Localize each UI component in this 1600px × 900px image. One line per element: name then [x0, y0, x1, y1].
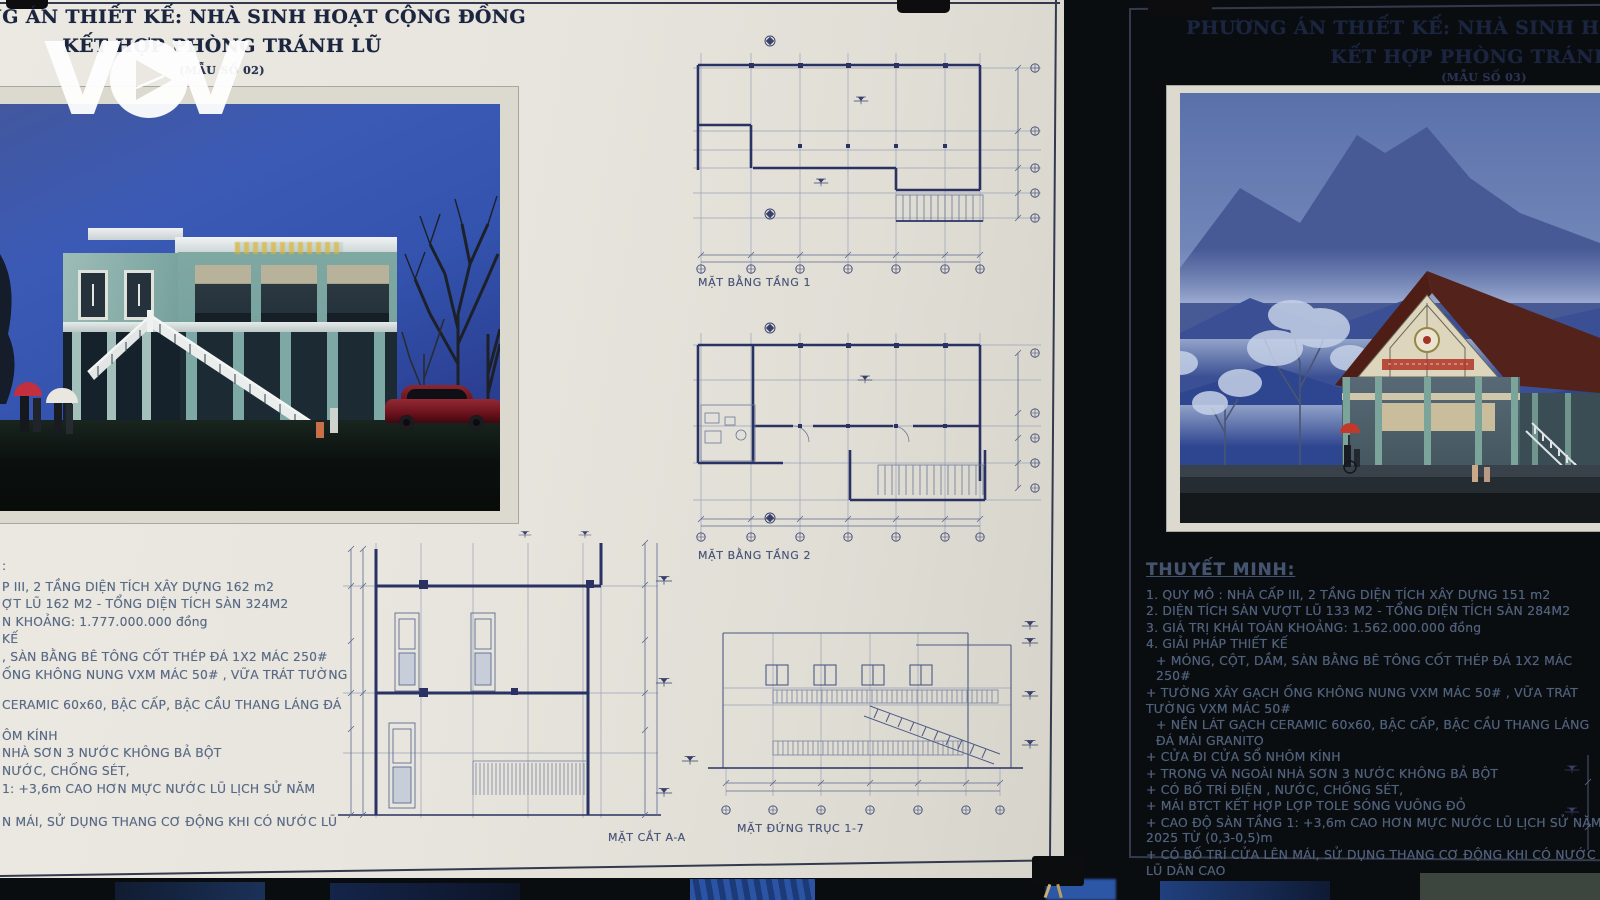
- right-title-text1: PHƯƠNG ÁN THIẾT KẾ: NHÀ SINH HOẠT CỘNG Đ…: [1186, 17, 1600, 39]
- section-drawing: [323, 523, 673, 838]
- mountain-layers: [1180, 93, 1600, 523]
- floor-plan-2-drawing: [663, 313, 1058, 558]
- binder-clip-bottom-icon: [1032, 856, 1084, 886]
- background-fragment: [690, 879, 815, 900]
- note-line: 1. QUY MÔ : NHÀ CẤP III, 2 TẦNG DIỆN TÍC…: [1146, 587, 1600, 603]
- background-fragment: [115, 882, 265, 900]
- vov-logo: V V: [44, 30, 259, 130]
- right-architectural-rendering: [1180, 93, 1600, 523]
- red-car: [385, 383, 500, 433]
- section-label: MẶT CẮT A-A: [608, 831, 686, 844]
- note-line: + CÓ BỐ TRÍ ĐIỆN , NƯỚC, CHỐNG SÉT,: [1146, 782, 1600, 798]
- car-wheel: [469, 415, 484, 430]
- note-line: + NỀN LÁT GẠCH CERAMIC 60x60, BẬC CẤP, B…: [1146, 717, 1600, 749]
- rendering-ground: [0, 420, 500, 511]
- background-fragment: [1420, 873, 1600, 900]
- notes-heading: THUYẾT MINH:: [1146, 560, 1600, 580]
- person-figure: [66, 404, 73, 434]
- person-figure: [20, 396, 29, 432]
- note-line: 3. GIÁ TRỊ KHÁI TOÁN KHOẢNG: 1.562.000.0…: [1146, 620, 1600, 636]
- child-figure: [316, 422, 324, 438]
- binder-clip-icon: [1148, 0, 1212, 17]
- note-line: + TRONG VÀ NGOÀI NHÀ SƠN 3 NƯỚC KHÔNG BẢ…: [1146, 766, 1600, 782]
- note-line: + TƯỜNG XÂY GẠCH ỐNG KHÔNG NUNG VXM MÁC …: [1146, 685, 1600, 717]
- drawing-fragment: [1558, 750, 1600, 860]
- note-line: + CAO ĐỘ SÀN TẦNG 1: +3,6m CAO HƠN MỰC N…: [1146, 815, 1600, 847]
- person-figure: [54, 403, 62, 435]
- right-title-text2: KẾT HỢP PHÒNG TRÁNH LŨ: [1330, 46, 1600, 68]
- right-title-text3: (MẪU SỐ 03): [1441, 71, 1527, 84]
- background-fragment: [330, 883, 520, 900]
- note-line: 2. DIỆN TÍCH SÀN VƯỢT LŨ 133 M2 - TỔNG D…: [1146, 603, 1600, 619]
- left-architectural-rendering: [0, 104, 500, 511]
- note-line: + CỬA ĐI CỬA SỔ NHÔM KÍNH: [1146, 749, 1600, 765]
- floor-plan-1-drawing: [663, 28, 1058, 300]
- elevation-label: MẶT ĐỨNG TRỤC 1-7: [737, 822, 864, 835]
- person-figure: [330, 408, 338, 433]
- photo-of-design-posters: PHƯƠNG ÁN THIẾT KẾ: NHÀ SINH HOẠT CỘNG Đ…: [0, 0, 1600, 900]
- right-notes-block: THUYẾT MINH: 1. QUY MÔ : NHÀ CẤP III, 2 …: [1146, 560, 1600, 879]
- note-line: + MÓNG, CỘT, DẦM, SÀN BẰNG BÊ TÔNG CỐT T…: [1146, 653, 1600, 685]
- note-line: + MÁI BTCT KẾT HỢP LỢP TOLE SÓNG VUÔNG Đ…: [1146, 798, 1600, 814]
- plan1-label: MẶT BẰNG TẦNG 1: [698, 276, 811, 289]
- person-figure: [33, 398, 41, 432]
- background-fragment: [1160, 881, 1330, 900]
- elevation-drawing: [678, 598, 1063, 843]
- plan2-label: MẶT BẰNG TẦNG 2: [698, 549, 811, 562]
- vov-letter-v2: V: [172, 30, 249, 130]
- right-poster-frame-left: [1129, 8, 1131, 858]
- binder-clip-icon: [897, 0, 950, 13]
- car-wheel: [399, 415, 414, 430]
- note-line: 4. GIẢI PHÁP THIẾT KẾ: [1146, 636, 1600, 652]
